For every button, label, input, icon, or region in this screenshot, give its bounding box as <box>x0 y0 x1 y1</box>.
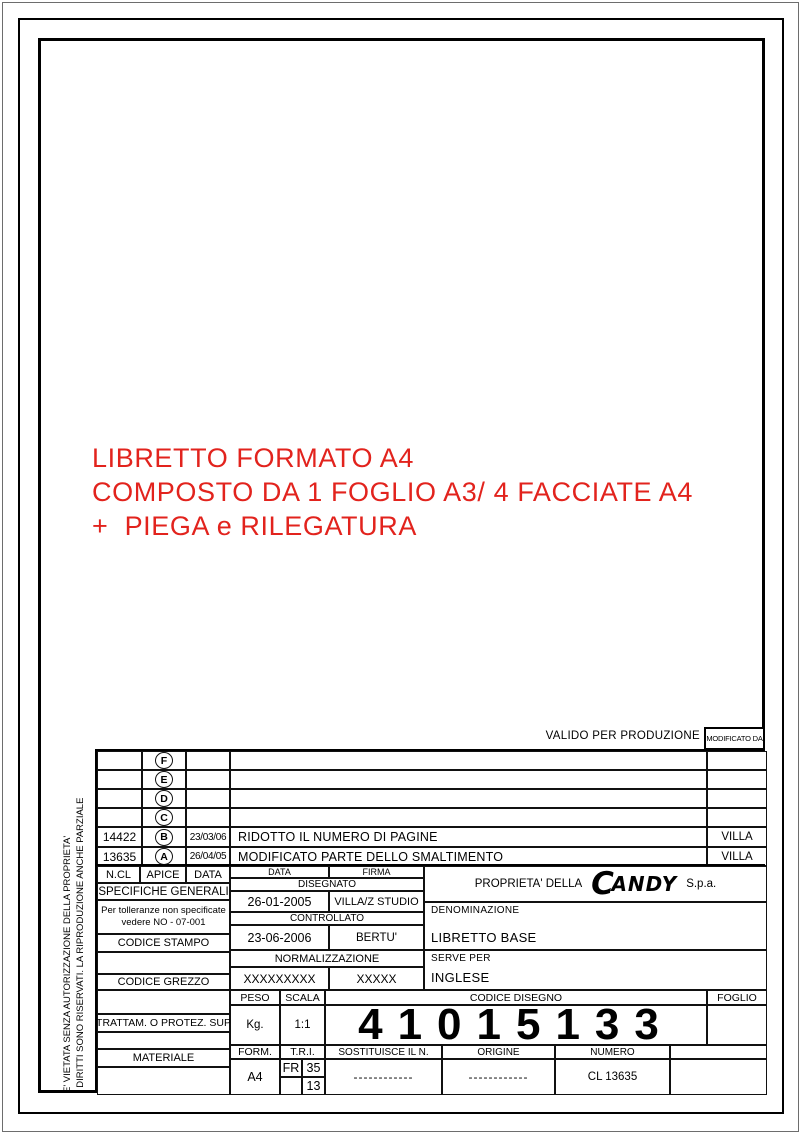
normalizzazione-date: XXXXXXXXX <box>230 967 329 990</box>
apex-circle: F <box>155 752 173 769</box>
revision-apex-cell: E <box>142 770 186 789</box>
apex-circle: A <box>155 848 173 865</box>
tolleranze-note: Per tolleranze non specificate vedere NO… <box>97 900 230 934</box>
controllato-label: CONTROLLATO <box>230 912 424 925</box>
denominazione-label: DENOMINAZIONE <box>431 905 519 916</box>
revision-apex-cell: C <box>142 808 186 827</box>
formato-label: FORM. <box>230 1045 280 1059</box>
revision-code <box>97 789 142 808</box>
scala-value: 1:1 <box>280 1005 325 1045</box>
sostituisce-value: ------------ <box>325 1059 442 1095</box>
tri-empty <box>280 1077 302 1095</box>
disegnato-label: DISEGNATO <box>230 878 424 891</box>
revision-modified-by <box>707 770 767 789</box>
revision-apex-cell: B <box>142 827 186 847</box>
formato-value: A4 <box>230 1059 280 1095</box>
note-line-3: + PIEGA e RILEGATURA <box>92 509 693 543</box>
title-block: N.CL APICE DATA SPECIFICHE GENERALI Per … <box>95 864 765 1093</box>
revision-modified-by <box>707 808 767 827</box>
revision-modified-by <box>707 751 767 770</box>
revision-date <box>186 751 230 770</box>
trattamento-label: TRATTAM. O PROTEZ. SUP <box>97 1014 230 1032</box>
revision-description <box>230 789 707 808</box>
tri-fr: FR <box>280 1059 302 1077</box>
revision-description <box>230 808 707 827</box>
firma-firma-header: FIRMA <box>329 866 424 878</box>
disegnato-date: 26-01-2005 <box>230 891 329 912</box>
specifiche-generali-label: SPECIFICHE GENERALI <box>97 883 230 900</box>
serve-per-cell: SERVE PER INGLESE <box>424 950 767 990</box>
revision-code: 14422 <box>97 827 142 847</box>
revision-description: RIDOTTO IL NUMERO DI PAGINE <box>230 827 707 847</box>
tolleranze-line-1: Per tolleranze non specificate <box>101 905 226 917</box>
drawing-sheet: LIBRETTO FORMATO A4 COMPOSTO DA 1 FOGLIO… <box>0 0 802 1134</box>
revision-date <box>186 770 230 789</box>
extra-value-cell <box>670 1059 767 1095</box>
codice-grezzo-label: CODICE GREZZO <box>97 974 230 990</box>
company-cell: PROPRIETA' DELLA CANDY S.p.a. <box>424 866 767 902</box>
revision-apex-cell: D <box>142 789 186 808</box>
controllato-firma: BERTU' <box>329 925 424 950</box>
candy-logo-rest: ANDY <box>611 874 677 894</box>
normalizzazione-label: NORMALIZZAZIONE <box>230 950 424 967</box>
valid-for-production-label: VALIDO PER PRODUZIONE <box>420 730 700 742</box>
apex-circle: D <box>155 790 173 807</box>
candy-logo: CANDY <box>591 870 677 898</box>
foglio-value <box>707 1005 767 1045</box>
serve-per-label: SERVE PER <box>431 953 491 964</box>
foglio-label: FOGLIO <box>707 990 767 1005</box>
codice-disegno-label: CODICE DISEGNO <box>325 990 707 1005</box>
revision-modified-by: VILLA <box>707 827 767 847</box>
copyright-line-inner: I DIRITTI SONO RISERVATI. LA RIPRODUZION… <box>75 743 88 1093</box>
codice-stampo-label: CODICE STAMPO <box>97 934 230 952</box>
peso-value: Kg. <box>230 1005 280 1045</box>
revision-table: F E D C 14422 B 23/03/06 RIDOTTO IL NUME… <box>95 749 765 864</box>
copyright-line-outer: E' VIETATA SENZA AUTORIZZAZIONE DELLA PR… <box>62 743 75 1093</box>
serve-per-value: INGLESE <box>431 970 489 985</box>
codice-stampo-value <box>97 952 230 974</box>
revision-date <box>186 808 230 827</box>
normalizzazione-firma: XXXXX <box>329 967 424 990</box>
revision-modified-by <box>707 789 767 808</box>
denominazione-value: LIBRETTO BASE <box>431 930 537 945</box>
apex-circle: C <box>155 809 173 826</box>
revision-apex-cell: F <box>142 751 186 770</box>
apex-circle: B <box>155 829 173 846</box>
tri-label: T.R.I. <box>280 1045 325 1059</box>
numero-value: CL 13635 <box>555 1059 670 1095</box>
revision-code <box>97 770 142 789</box>
codice-disegno-value: 41015133 <box>325 1005 707 1045</box>
origine-value: ------------ <box>442 1059 555 1095</box>
revision-description <box>230 770 707 789</box>
note-line-1: LIBRETTO FORMATO A4 <box>92 441 693 475</box>
revision-code <box>97 751 142 770</box>
tri-sotto: 13 <box>302 1077 325 1095</box>
apice-header: APICE <box>140 866 186 883</box>
materiale-value <box>97 1067 230 1095</box>
drawing-note: LIBRETTO FORMATO A4 COMPOSTO DA 1 FOGLIO… <box>92 441 693 543</box>
data-header: DATA <box>186 866 230 883</box>
apex-circle: E <box>155 771 173 788</box>
modified-by-header: MODIFICATO DA <box>704 727 765 750</box>
copyright-vertical-text: E' VIETATA SENZA AUTORIZZAZIONE DELLA PR… <box>62 743 87 1093</box>
numero-label: NUMERO <box>555 1045 670 1059</box>
revision-date: 23/03/06 <box>186 827 230 847</box>
revision-code <box>97 808 142 827</box>
revision-date <box>186 789 230 808</box>
peso-label: PESO <box>230 990 280 1005</box>
sostituisce-label: SOSTITUISCE IL N. <box>325 1045 442 1059</box>
tolleranze-line-2: vedere NO - 07-001 <box>122 917 206 929</box>
trattamento-value <box>97 1032 230 1049</box>
origine-label: ORIGINE <box>442 1045 555 1059</box>
note-line-2: COMPOSTO DA 1 FOGLIO A3/ 4 FACCIATE A4 <box>92 475 693 509</box>
controllato-date: 23-06-2006 <box>230 925 329 950</box>
firma-data-header: DATA <box>230 866 329 878</box>
codice-grezzo-value <box>97 990 230 1014</box>
spa-suffix: S.p.a. <box>686 878 716 890</box>
denominazione-cell: DENOMINAZIONE LIBRETTO BASE <box>424 902 767 950</box>
scala-label: SCALA <box>280 990 325 1005</box>
revision-description <box>230 751 707 770</box>
ncl-header: N.CL <box>97 866 140 883</box>
materiale-label: MATERIALE <box>97 1049 230 1067</box>
extra-header-cell <box>670 1045 767 1059</box>
disegnato-firma: VILLA/Z STUDIO <box>329 891 424 912</box>
proprieta-label: PROPRIETA' DELLA <box>475 878 582 890</box>
tri-sopra: 35 <box>302 1059 325 1077</box>
